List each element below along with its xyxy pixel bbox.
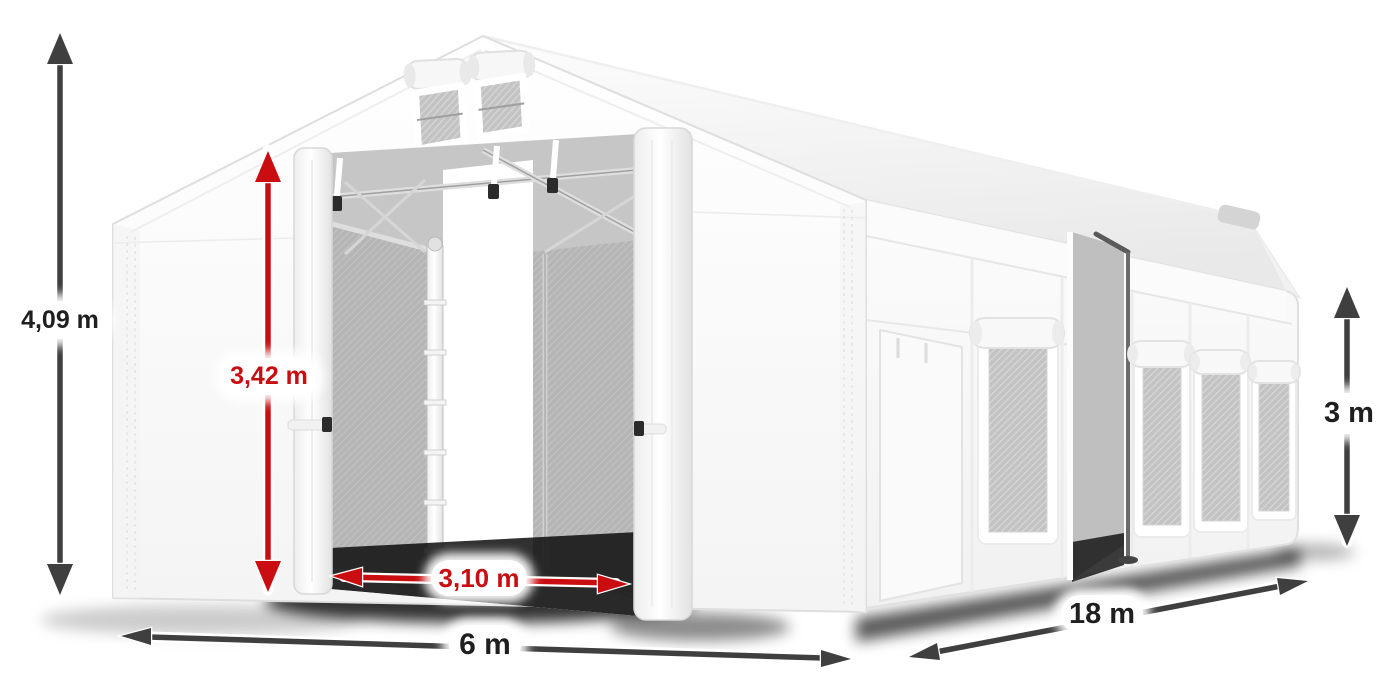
mesh-window-3 (1190, 350, 1250, 532)
window-roll-1 (970, 318, 1064, 348)
side-door-panel (880, 330, 962, 601)
side-door-opening (1070, 232, 1138, 582)
window-roll-2 (1128, 341, 1194, 367)
dimension-label-front-width: 6 m (449, 625, 521, 665)
mesh-window-2 (1128, 341, 1194, 537)
dimension-value: 3,10 m (439, 563, 520, 594)
dimension-value: 4,09 m (21, 306, 99, 335)
dimension-value: 18 m (1069, 598, 1135, 631)
window-roll-3 (1190, 350, 1250, 374)
dimension-label-door-width: 3,10 m (431, 560, 527, 596)
mesh-window-4 (1248, 361, 1300, 520)
window-roll-4 (1248, 361, 1300, 383)
dimension-label-door-height: 3,42 m (222, 358, 316, 395)
mesh-window-1 (970, 318, 1064, 544)
dimension-value: 6 m (459, 628, 511, 662)
dimension-value: 3,42 m (230, 362, 308, 391)
dimension-label-side-height: 3 m (1312, 393, 1386, 434)
tent-illustration (0, 0, 1400, 700)
front-opening-interior (325, 125, 645, 625)
tent-dimension-diagram: 4,09 m 3,42 m 3,10 m 6 m 18 m 3 m (0, 0, 1400, 700)
dimension-value: 3 m (1324, 397, 1374, 430)
dimension-label-total-height: 4,09 m (13, 301, 107, 339)
door-post-right (634, 128, 692, 620)
interior-left-wall (330, 226, 427, 594)
interior-back-opening (443, 160, 533, 578)
interior-post (424, 237, 446, 576)
dimension-label-side-length: 18 m (1061, 595, 1143, 634)
